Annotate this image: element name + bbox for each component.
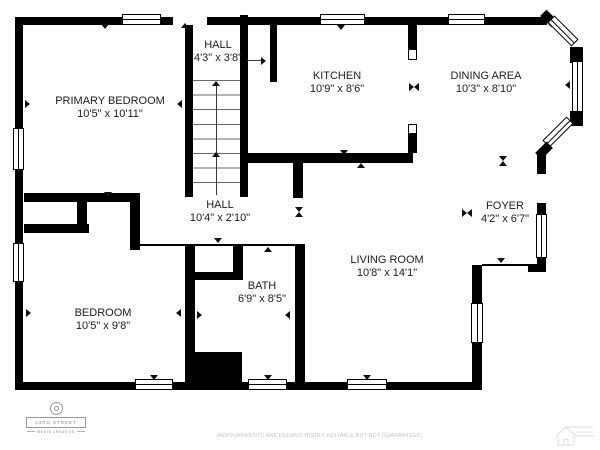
window [248, 379, 287, 390]
room-dims: 4'2" x 6'7" [481, 213, 529, 226]
room-label-bath: BATH 6'9" x 8'5" [238, 280, 286, 306]
window [13, 243, 24, 282]
house-watermark-icon [552, 424, 596, 450]
opening-marker [499, 156, 507, 166]
window [13, 128, 24, 170]
kitchen-dining-stub [408, 25, 417, 49]
exterior-wall-bottom [387, 382, 482, 390]
kitchen-wall-bottom [248, 153, 413, 163]
exterior-wall-left [15, 17, 23, 128]
dimension-marker [177, 100, 182, 108]
dimension-marker [462, 209, 472, 217]
exterior-wall-left [15, 282, 23, 390]
cased-opening [482, 264, 528, 266]
opening-marker [264, 375, 272, 380]
hall-floor-edge [140, 244, 185, 246]
exterior-wall-top [485, 17, 547, 25]
stair-up-arrow [212, 152, 220, 157]
disclaimer-text: MEASUREMENTS ARE DEEMED HIGHLY RELIABLE … [217, 433, 423, 439]
bay-window [547, 15, 578, 46]
room-name: DINING AREA [451, 70, 522, 83]
opening-marker [101, 24, 109, 29]
wall-end-cap [408, 49, 417, 60]
room-dims: 4'3" x 3'8" [194, 52, 242, 65]
exterior-wall-left [15, 170, 23, 243]
opening-marker [214, 238, 222, 243]
window [135, 379, 173, 390]
room-dims: 10'8" x 14'1" [350, 267, 423, 280]
dimension-marker [176, 309, 181, 317]
exterior-wall-right [472, 343, 482, 390]
floor-plan: HALL 4'3" x 3'8" KITCHEN 10'9" x 8'6" DI… [0, 0, 600, 450]
kitchen-living-stub [408, 134, 417, 153]
room-label-living-room: LIVING ROOM 10'8" x 14'1" [350, 254, 423, 280]
landing-arrow [261, 57, 266, 65]
dimension-marker [565, 81, 570, 89]
room-name: HALL [190, 199, 250, 212]
exterior-wall-bottom [15, 382, 135, 390]
room-name: KITCHEN [310, 70, 364, 83]
dimension-marker [26, 309, 31, 317]
dimension-marker [409, 83, 419, 91]
window [536, 214, 547, 258]
opening-marker [264, 247, 272, 252]
room-name: BEDROOM [75, 307, 132, 320]
exterior-wall-bottom [173, 382, 248, 390]
logo-dash [77, 431, 85, 432]
wall-end-cap [408, 124, 417, 134]
window [448, 14, 485, 25]
room-name: BATH [238, 280, 286, 293]
stair-wall-left [185, 25, 193, 197]
room-dims: 6'9" x 8'5" [238, 293, 286, 306]
dimension-marker [285, 311, 290, 319]
room-label-dining: DINING AREA 10'3" x 8'10" [451, 70, 522, 96]
window [122, 14, 161, 25]
understairs-solid [193, 352, 242, 382]
entry-door-marker [181, 23, 189, 28]
exterior-wall-foyer [528, 264, 546, 272]
stair-up-arrow [212, 81, 220, 86]
hall-floor-edge [243, 244, 295, 246]
room-dims: 10'5" x 10'11" [55, 108, 165, 121]
room-label-upper-hall: HALL 4'3" x 3'8" [194, 39, 242, 65]
room-name: LIVING ROOM [350, 254, 423, 267]
window [320, 14, 365, 25]
landing-direction-line [247, 60, 262, 61]
exterior-wall-top [207, 17, 320, 25]
opening-marker [497, 258, 505, 263]
kitchen-corner-wall [293, 160, 303, 198]
exterior-wall-foyer [537, 203, 546, 214]
room-dims: 10'9" x 8'6" [310, 83, 364, 96]
closet-wall [192, 272, 243, 280]
room-label-primary-bedroom: PRIMARY BEDROOM 10'5" x 10'11" [55, 95, 165, 121]
logo-text: 23RD STREET [26, 417, 86, 428]
bedroom-closet-stub [77, 202, 87, 233]
opening-marker [340, 150, 348, 155]
opening-marker [357, 163, 365, 168]
exterior-wall-foyer [537, 151, 546, 174]
hall-floor-edge [195, 244, 233, 246]
room-label-kitchen: KITCHEN 10'9" x 8'6" [310, 70, 364, 96]
room-label-bedroom: BEDROOM 10'5" x 9'8" [75, 307, 132, 333]
opening-marker [295, 207, 303, 217]
primary-bedroom-wall-south [24, 193, 140, 202]
bay-window [572, 61, 583, 113]
dimension-marker [25, 100, 30, 108]
room-dims: 10'4" x 2'10" [190, 212, 250, 225]
room-dims: 10'5" x 9'8" [75, 320, 132, 333]
aperture-icon [50, 402, 63, 415]
logo-subtext: MEDIA CREATIVE [37, 430, 75, 434]
opening-marker [150, 375, 158, 380]
opening-marker [363, 375, 371, 380]
dimension-marker [197, 311, 202, 319]
logo-subtext-row: MEDIA CREATIVE [26, 430, 86, 434]
exterior-wall-bottom [287, 382, 347, 390]
hall-wall-west [130, 197, 140, 250]
branding-logo: 23RD STREET MEDIA CREATIVE [26, 402, 86, 434]
opening-marker [337, 25, 345, 30]
room-name: HALL [194, 39, 242, 52]
bath-living-wall [295, 244, 305, 382]
logo-dash [27, 431, 35, 432]
room-label-hall: HALL 10'4" x 2'10" [190, 199, 250, 225]
room-label-foyer: FOYER 4'2" x 6'7" [481, 200, 529, 226]
landing-wall [270, 25, 277, 82]
exterior-wall-top [161, 17, 173, 25]
opening-marker [104, 192, 112, 197]
room-name: PRIMARY BEDROOM [55, 95, 165, 108]
window [471, 303, 483, 343]
stair-direction-line [216, 82, 217, 195]
room-name: FOYER [481, 200, 529, 213]
window [347, 379, 387, 390]
exterior-wall-right [472, 265, 482, 303]
exterior-wall-top [365, 17, 448, 25]
room-dims: 10'3" x 8'10" [451, 83, 522, 96]
